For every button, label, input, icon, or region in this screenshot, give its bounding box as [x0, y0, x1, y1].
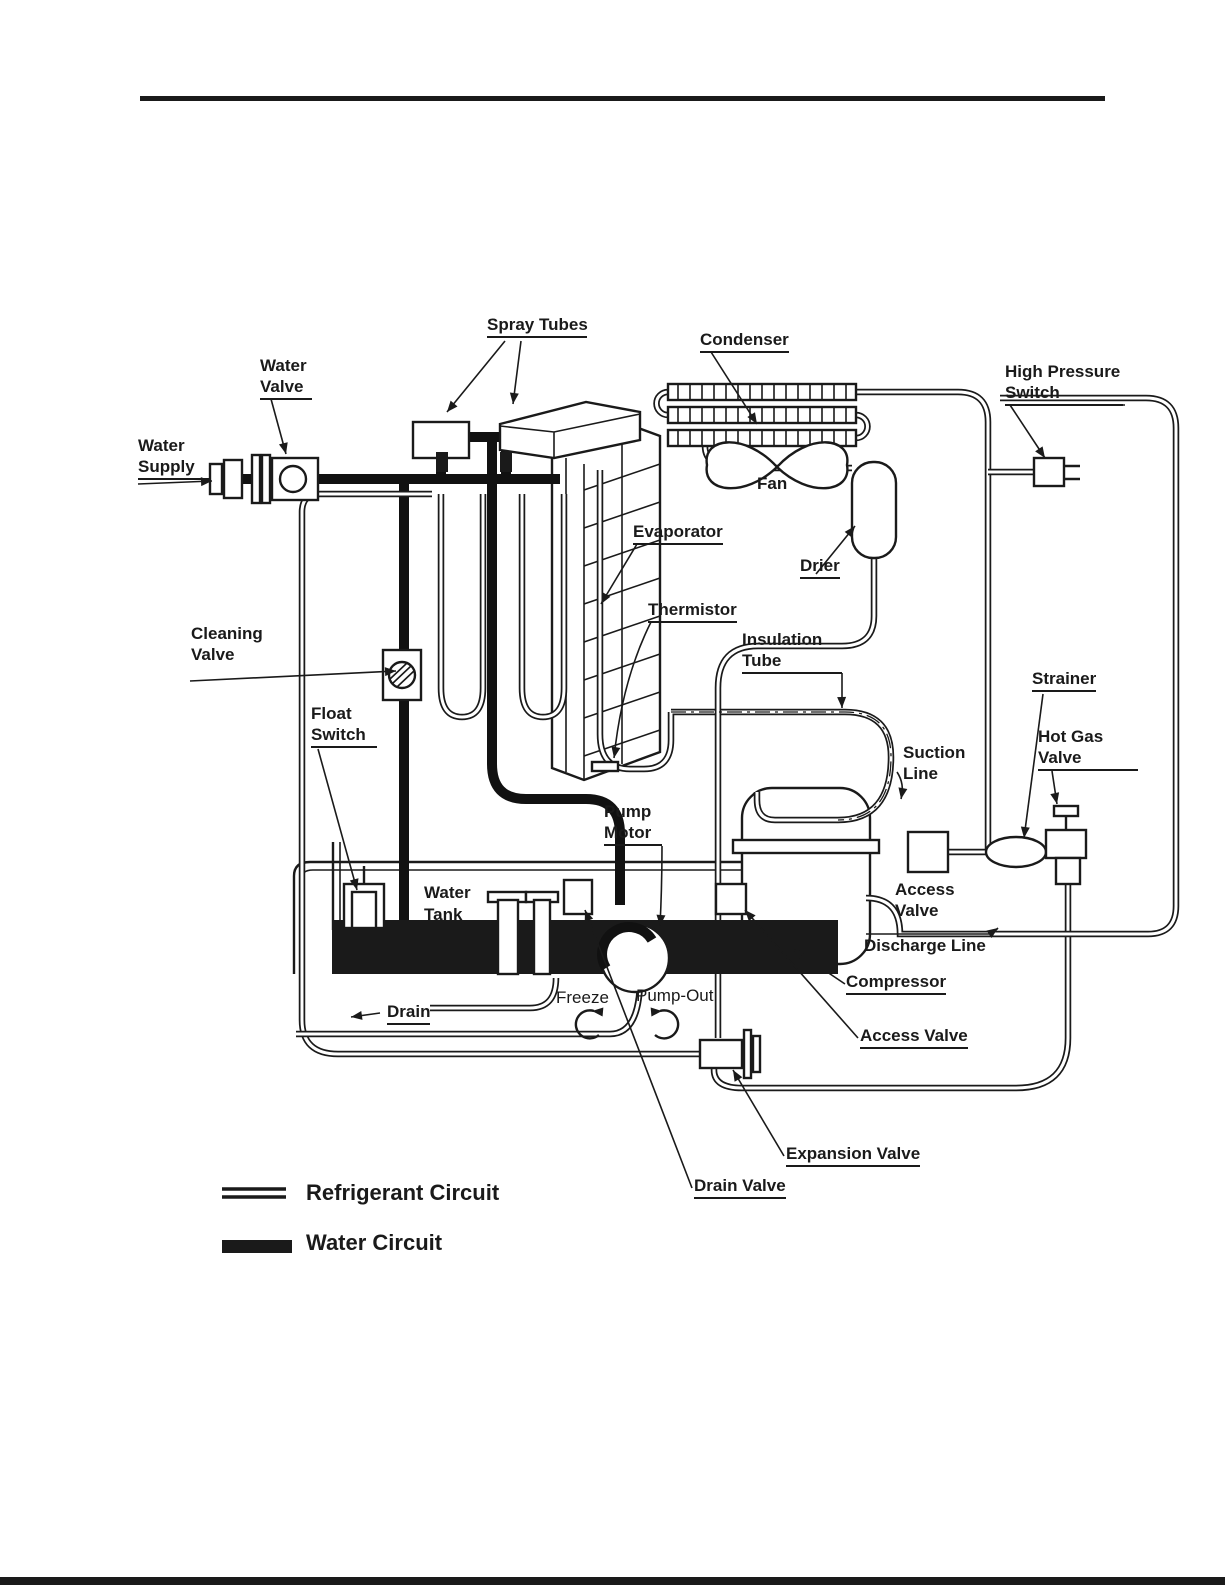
expansion-valve-body: [700, 1030, 760, 1078]
label-water-supply-l1: Water: [138, 436, 185, 456]
condenser-coil: [668, 384, 856, 446]
label-strainer: Strainer: [1032, 669, 1096, 692]
float-switch-cup: [344, 866, 384, 928]
evaporator-panel: [552, 425, 660, 780]
manual-page: Spray Tubes Condenser High Pressure Swit…: [0, 0, 1225, 1585]
label-float-switch-l1: Float: [311, 704, 352, 724]
strainer-oval: [986, 837, 1046, 867]
label-cleaning-valve-l1: Cleaning: [191, 624, 263, 644]
pump-out-arrow-icon: [651, 1007, 678, 1039]
legend-refrigerant-label: Refrigerant Circuit: [306, 1180, 499, 1206]
label-fan: Fan: [757, 474, 787, 494]
legend-water-swatch: [222, 1240, 292, 1253]
label-drain-valve: Drain Valve: [694, 1176, 786, 1199]
drain-valve-box: [564, 880, 592, 914]
label-access-valve-bottom: Access Valve: [860, 1026, 968, 1049]
label-evaporator: Evaporator: [633, 522, 723, 545]
bottom-edge-bar: [0, 1577, 1225, 1585]
label-condenser: Condenser: [700, 330, 789, 353]
label-insulation-tube-l2: Tube: [742, 651, 842, 674]
pump-motor-circle: [601, 924, 669, 992]
diagram-canvas: [0, 0, 1225, 1585]
label-drier: Drier: [800, 556, 840, 579]
label-water-tank-l2: Tank: [424, 905, 462, 925]
label-expansion-valve: Expansion Valve: [786, 1144, 920, 1167]
label-hot-gas-valve-l1: Hot Gas: [1038, 727, 1103, 747]
label-access-valve-top-l2: Valve: [895, 901, 939, 921]
drier-capsule: [852, 462, 896, 558]
label-freeze: Freeze: [556, 988, 609, 1008]
label-pump-motor-l1: Pump: [604, 802, 651, 822]
label-thermistor: Thermistor: [648, 600, 737, 623]
label-water-supply-l2: Supply: [138, 457, 210, 480]
access-valve-bottom-box: [716, 884, 746, 914]
label-suction-line-l2: Line: [903, 764, 938, 784]
label-insulation-tube-l1: Insulation: [742, 630, 822, 650]
label-water-valve-l1: Water: [260, 356, 307, 376]
high-pressure-switch-box: [1034, 458, 1080, 486]
label-discharge-line: Discharge Line: [864, 936, 986, 956]
water-supply-fitting: [210, 460, 242, 498]
label-pump-out: Pump-Out: [636, 986, 713, 1006]
label-high-pressure-switch-l2: Switch: [1005, 383, 1123, 406]
thermistor-sensor: [592, 762, 618, 771]
label-access-valve-top-l1: Access: [895, 880, 955, 900]
label-suction-line-l1: Suction: [903, 743, 965, 763]
legend-refrigerant-swatch: [222, 1189, 286, 1197]
access-valve-top-box: [908, 832, 948, 872]
spray-header-left: [413, 422, 469, 472]
label-compressor: Compressor: [846, 972, 946, 995]
label-spray-tubes: Spray Tubes: [487, 315, 587, 338]
label-float-switch-l2: Switch: [311, 725, 377, 748]
label-hot-gas-valve-l2: Valve: [1038, 748, 1138, 771]
label-water-tank-l1: Water: [424, 883, 471, 903]
top-rule: [140, 96, 1105, 101]
label-water-valve-l2: Valve: [260, 377, 312, 400]
label-high-pressure-switch-l1: High Pressure: [1005, 362, 1120, 382]
hot-gas-valve-body: [1046, 806, 1086, 884]
label-pump-motor-l2: Motor: [604, 823, 662, 846]
label-cleaning-valve-l2: Valve: [191, 645, 235, 665]
label-drain: Drain: [387, 1002, 430, 1025]
water-valve-body: [252, 455, 318, 503]
cleaning-valve-symbol: [383, 650, 421, 700]
float-switch-assembly: [333, 842, 340, 930]
legend-water-label: Water Circuit: [306, 1230, 442, 1256]
